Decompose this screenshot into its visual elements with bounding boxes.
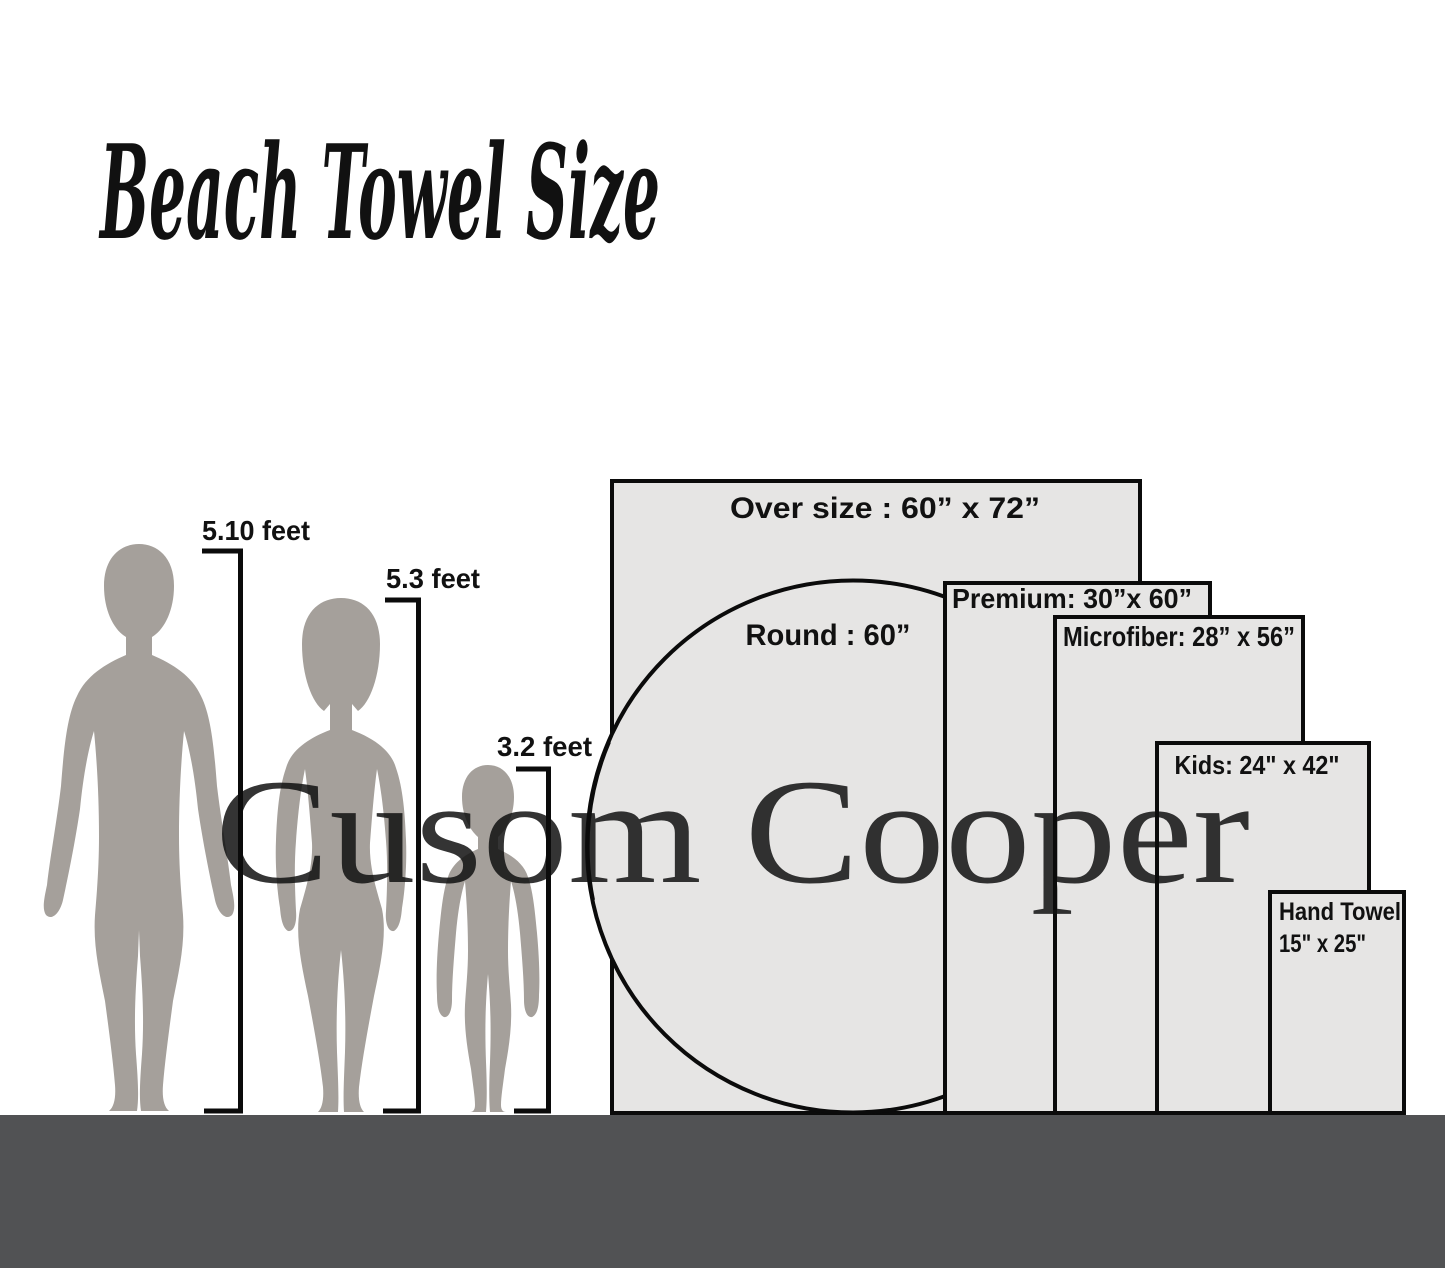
round-towel-label: Round : 60” — [746, 619, 911, 652]
ground-bar — [0, 1115, 1445, 1268]
microfiber-towel-label: Microfiber: 28” x 56” — [1063, 621, 1295, 652]
hand-towel-label-line2: 15" x 25" — [1279, 930, 1366, 958]
premium-towel-label: Premium: 30”x 60” — [952, 583, 1192, 614]
kids-towel-label: Kids: 24" x 42" — [1175, 750, 1340, 780]
infographic-canvas: Beach Towel Size Cusom Cooper — [0, 0, 1445, 1268]
watermark: Cusom Cooper — [215, 749, 1250, 915]
oversize-towel-label: Over size : 60” x 72” — [730, 492, 1040, 525]
woman-height-label: 5.3 feet — [386, 563, 480, 594]
man-height-label: 5.10 feet — [202, 515, 310, 546]
page-title: Beach Towel Size — [98, 116, 660, 269]
child-height-label: 3.2 feet — [497, 731, 592, 762]
hand-towel-label-line1: Hand Towel — [1279, 898, 1401, 926]
